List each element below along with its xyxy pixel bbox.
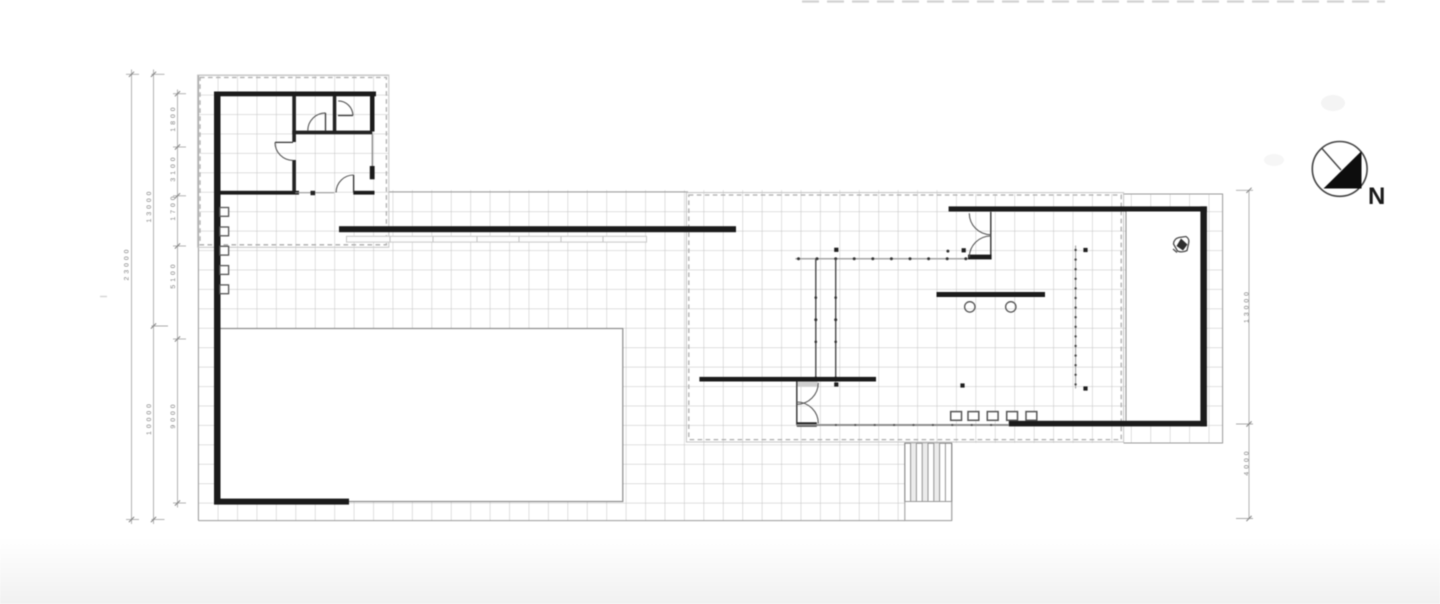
svg-text:3100: 3100 (170, 154, 177, 181)
svg-text:N: N (1368, 183, 1385, 210)
svg-text:9000: 9000 (170, 401, 177, 428)
svg-text:5100: 5100 (170, 261, 177, 288)
svg-text:13000: 13000 (1243, 289, 1250, 323)
svg-text:4000: 4000 (1243, 448, 1250, 475)
svg-text:23000: 23000 (123, 247, 130, 281)
svg-text:10000: 10000 (146, 401, 153, 435)
svg-text:1800: 1800 (170, 104, 177, 131)
svg-text:13000: 13000 (146, 189, 153, 223)
svg-text:1700: 1700 (170, 193, 177, 220)
